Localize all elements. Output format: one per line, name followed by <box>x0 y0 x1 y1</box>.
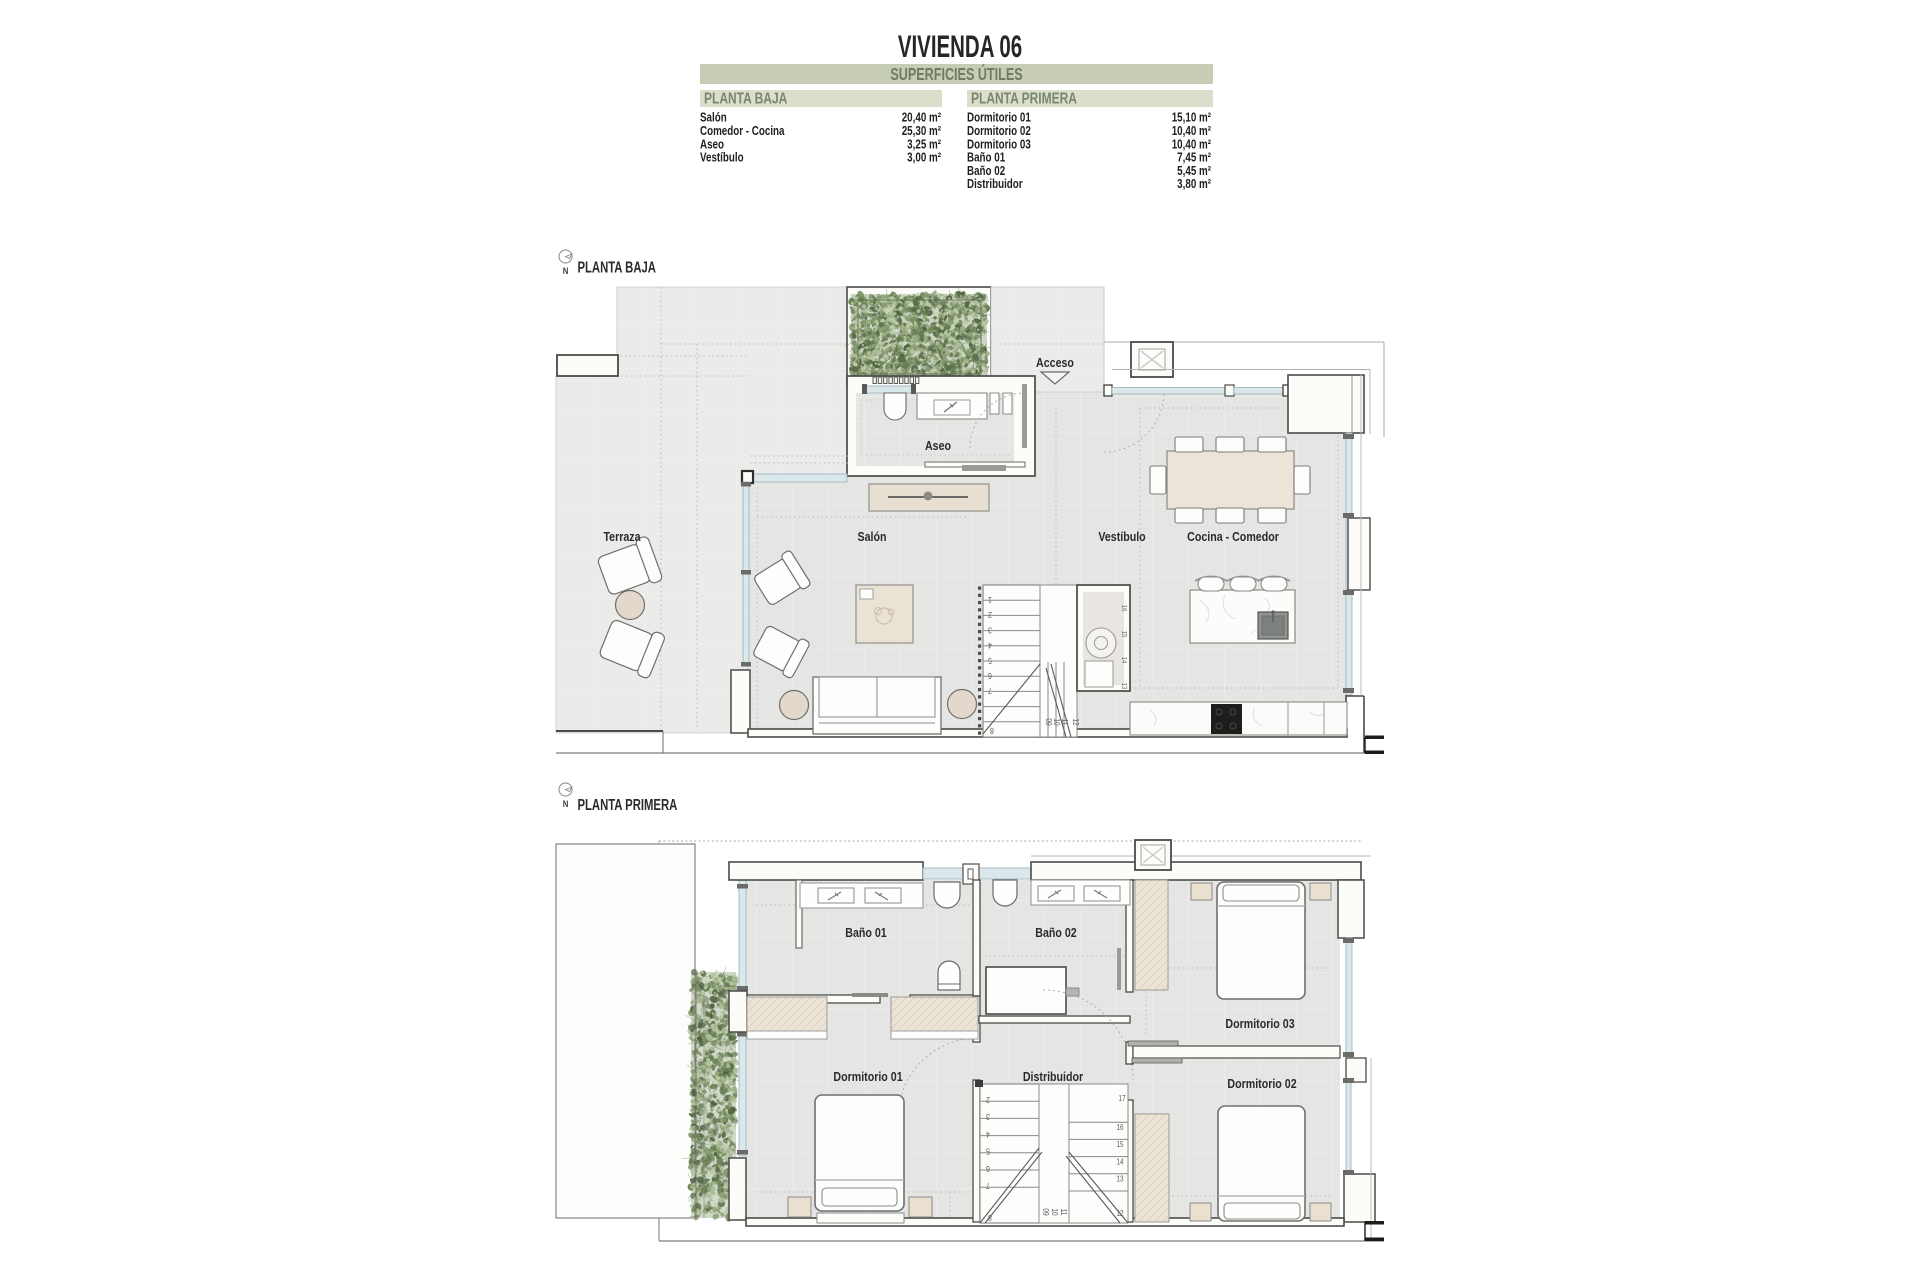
svg-text:14: 14 <box>1116 1157 1123 1167</box>
svg-text:PLANTA BAJA: PLANTA BAJA <box>578 259 657 276</box>
svg-text:12: 12 <box>1071 718 1081 725</box>
svg-text:15,10 m²: 15,10 m² <box>1172 112 1211 125</box>
svg-text:Dormitorio 02: Dormitorio 02 <box>1227 1076 1297 1091</box>
svg-text:N: N <box>563 265 569 276</box>
svg-text:Distribuidor: Distribuidor <box>1023 1069 1084 1084</box>
svg-text:4: 4 <box>985 1129 989 1139</box>
svg-text:3,00 m²: 3,00 m² <box>907 152 941 165</box>
svg-text:8: 8 <box>990 726 994 736</box>
svg-text:14: 14 <box>1120 657 1128 664</box>
svg-text:Cocina - Comedor: Cocina - Comedor <box>1187 529 1279 544</box>
svg-text:4: 4 <box>987 640 991 650</box>
svg-text:Salón: Salón <box>700 112 727 125</box>
svg-text:Salón: Salón <box>857 529 886 544</box>
svg-text:7,45 m²: 7,45 m² <box>1177 152 1211 165</box>
svg-text:Vestíbulo: Vestíbulo <box>700 152 744 165</box>
svg-text:Baño 01: Baño 01 <box>845 925 887 940</box>
svg-text:2: 2 <box>988 610 992 620</box>
svg-text:Dormitorio 03: Dormitorio 03 <box>1225 1016 1295 1031</box>
svg-text:VIVIENDA 06: VIVIENDA 06 <box>898 29 1022 65</box>
svg-text:Dormitorio 01: Dormitorio 01 <box>833 1069 903 1084</box>
svg-text:Baño 02: Baño 02 <box>1035 925 1077 940</box>
svg-text:7: 7 <box>988 686 992 696</box>
svg-text:Terraza: Terraza <box>603 529 640 544</box>
svg-text:8: 8 <box>988 1213 992 1223</box>
svg-text:Baño 02: Baño 02 <box>967 165 1005 178</box>
svg-text:13: 13 <box>1120 683 1128 690</box>
svg-text:Aseo: Aseo <box>700 138 724 151</box>
svg-text:17: 17 <box>1118 1093 1125 1103</box>
svg-text:20,40 m²: 20,40 m² <box>902 112 941 125</box>
svg-text:5: 5 <box>986 1146 990 1156</box>
svg-text:10,40 m²: 10,40 m² <box>1172 138 1211 151</box>
svg-text:3: 3 <box>986 1112 990 1122</box>
svg-text:PLANTA BAJA: PLANTA BAJA <box>704 89 787 107</box>
svg-text:2: 2 <box>986 1095 990 1105</box>
svg-text:3,25 m²: 3,25 m² <box>907 138 941 151</box>
svg-text:Dormitorio 02: Dormitorio 02 <box>967 125 1031 138</box>
svg-text:PLANTA PRIMERA: PLANTA PRIMERA <box>971 89 1077 107</box>
svg-text:6: 6 <box>986 1164 990 1174</box>
svg-text:16: 16 <box>1120 605 1128 612</box>
svg-text:7: 7 <box>986 1181 990 1191</box>
svg-text:PLANTA PRIMERA: PLANTA PRIMERA <box>578 796 678 813</box>
svg-text:5,45 m²: 5,45 m² <box>1177 165 1211 178</box>
svg-text:11: 11 <box>1059 1209 1069 1216</box>
svg-text:25,30 m²: 25,30 m² <box>902 125 941 138</box>
svg-text:15: 15 <box>1120 631 1128 638</box>
svg-text:13: 13 <box>1116 1174 1123 1184</box>
svg-text:15: 15 <box>1116 1139 1123 1149</box>
svg-text:1: 1 <box>988 595 992 605</box>
svg-text:16: 16 <box>1116 1122 1123 1132</box>
svg-text:6: 6 <box>988 671 992 681</box>
svg-text:N: N <box>563 798 569 809</box>
svg-text:SUPERFICIES ÚTILES: SUPERFICIES ÚTILES <box>890 64 1022 85</box>
svg-text:Distribuidor: Distribuidor <box>967 178 1023 191</box>
svg-text:3: 3 <box>988 625 992 635</box>
svg-text:3,80 m²: 3,80 m² <box>1177 178 1211 191</box>
svg-text:Aseo: Aseo <box>925 438 951 453</box>
svg-text:Comedor - Cocina: Comedor - Cocina <box>700 125 785 138</box>
svg-text:10,40 m²: 10,40 m² <box>1172 125 1211 138</box>
svg-text:Dormitorio 03: Dormitorio 03 <box>967 138 1031 151</box>
svg-text:5: 5 <box>988 656 992 666</box>
svg-text:Vestíbulo: Vestíbulo <box>1098 529 1145 544</box>
svg-text:Dormitorio 01: Dormitorio 01 <box>967 112 1031 125</box>
svg-text:Acceso: Acceso <box>1036 355 1074 370</box>
svg-text:10: 10 <box>1050 1208 1060 1215</box>
svg-text:09: 09 <box>1041 1208 1051 1215</box>
svg-text:Baño 01: Baño 01 <box>967 152 1005 165</box>
